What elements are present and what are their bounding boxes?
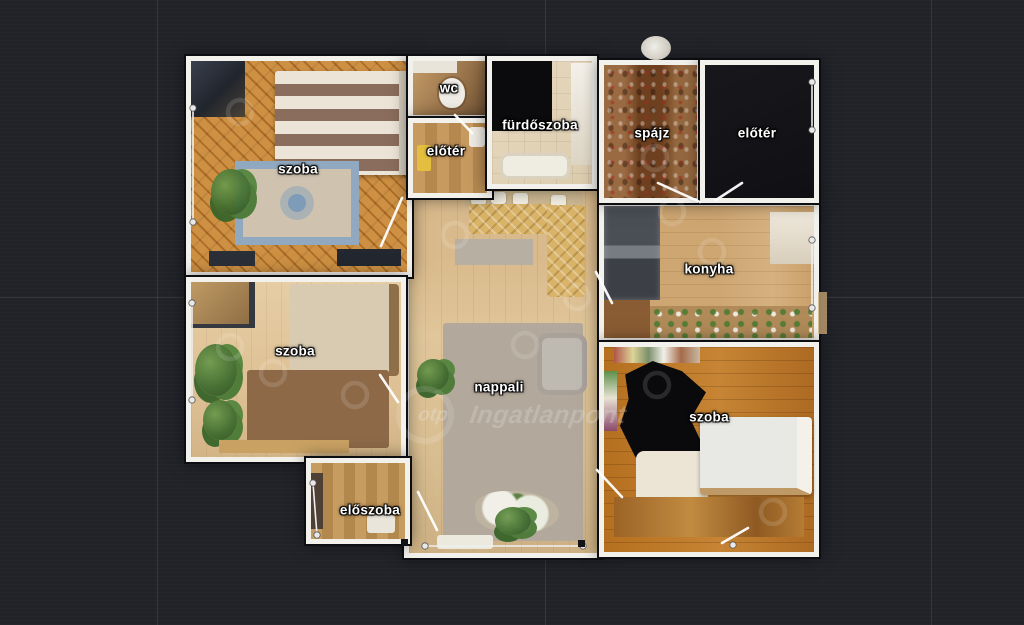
room-label-bedroom-middle-left: szoba bbox=[275, 344, 315, 359]
plant bbox=[417, 359, 449, 391]
room-label-wc: wc bbox=[440, 81, 459, 96]
room-label-bedroom-right: szoba bbox=[689, 410, 729, 425]
plant bbox=[211, 169, 251, 215]
brown-rug bbox=[247, 370, 389, 448]
kitchen-cabinet bbox=[604, 300, 650, 338]
room-label-pantry: spájz bbox=[634, 126, 669, 141]
bed bbox=[289, 284, 399, 376]
furniture-dark bbox=[337, 249, 401, 266]
plant bbox=[203, 400, 237, 440]
room-label-entrance-hall: előszoba bbox=[340, 503, 400, 518]
furniture-dark bbox=[209, 251, 255, 266]
shelf bbox=[413, 61, 457, 73]
armchair bbox=[537, 333, 587, 395]
small-rug bbox=[455, 239, 533, 265]
bed-white bbox=[700, 417, 812, 495]
sofa-chaise bbox=[547, 205, 585, 297]
dresser bbox=[614, 497, 804, 537]
room-bedroom-middle-left bbox=[186, 277, 406, 462]
bathtub bbox=[500, 153, 570, 179]
sofa-pillow bbox=[491, 192, 506, 204]
sofa-seat bbox=[469, 204, 551, 234]
grid-line-vertical bbox=[157, 0, 158, 625]
photo-bleed bbox=[818, 292, 827, 334]
kitchen-appliances bbox=[604, 206, 660, 300]
bathroom-fixtures bbox=[571, 63, 592, 165]
sideboard bbox=[437, 535, 493, 549]
door-leaf bbox=[469, 127, 485, 147]
room-living-room bbox=[404, 186, 602, 558]
plant bbox=[195, 344, 237, 396]
room-label-living-room: nappali bbox=[474, 380, 523, 395]
room-label-hallway-small: előtér bbox=[427, 144, 466, 159]
chandelier-bleed bbox=[641, 36, 671, 60]
desk-dark bbox=[191, 61, 245, 117]
plant bbox=[495, 507, 531, 535]
room-label-bathroom: fürdőszoba bbox=[502, 118, 578, 133]
shelf-colorful bbox=[614, 347, 700, 363]
bench bbox=[219, 440, 349, 453]
kitchen-counter-right bbox=[770, 212, 814, 264]
cabinet bbox=[311, 473, 323, 529]
room-label-kitchen: konyha bbox=[684, 262, 733, 277]
room-label-foyer-top-right: előtér bbox=[738, 126, 777, 141]
room-label-bedroom-top-left: szoba bbox=[278, 162, 318, 177]
room-bedroom-right bbox=[599, 342, 819, 557]
door-leaf bbox=[367, 515, 395, 533]
grid-line-vertical bbox=[931, 0, 932, 625]
shelf-items bbox=[604, 371, 617, 431]
room-entrance-hall bbox=[306, 458, 410, 544]
kitchen-counter-plants bbox=[650, 306, 812, 338]
floorplan-screenshot: otp Ingatlanpont szoba wc fürdőszoba elő… bbox=[0, 0, 1024, 625]
bed-striped bbox=[275, 71, 413, 175]
desk bbox=[191, 282, 255, 328]
